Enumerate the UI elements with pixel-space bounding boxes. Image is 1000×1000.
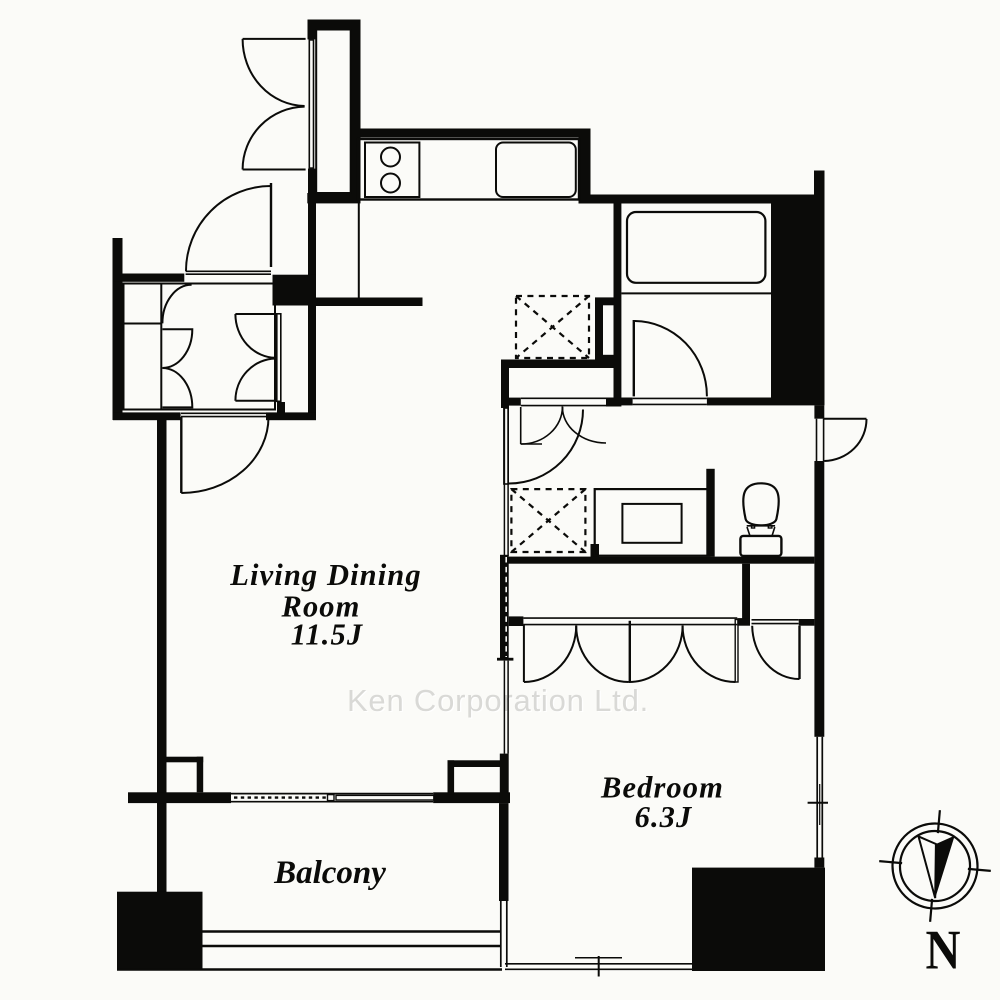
svg-text:Living Dining: Living Dining	[229, 558, 421, 592]
svg-text:Balcony: Balcony	[273, 855, 386, 891]
svg-text:N: N	[926, 920, 961, 982]
svg-text:11.5J: 11.5J	[291, 618, 364, 652]
svg-text:6.3J: 6.3J	[635, 800, 693, 834]
svg-text:Ken Corporation Ltd.: Ken Corporation Ltd.	[347, 683, 649, 718]
